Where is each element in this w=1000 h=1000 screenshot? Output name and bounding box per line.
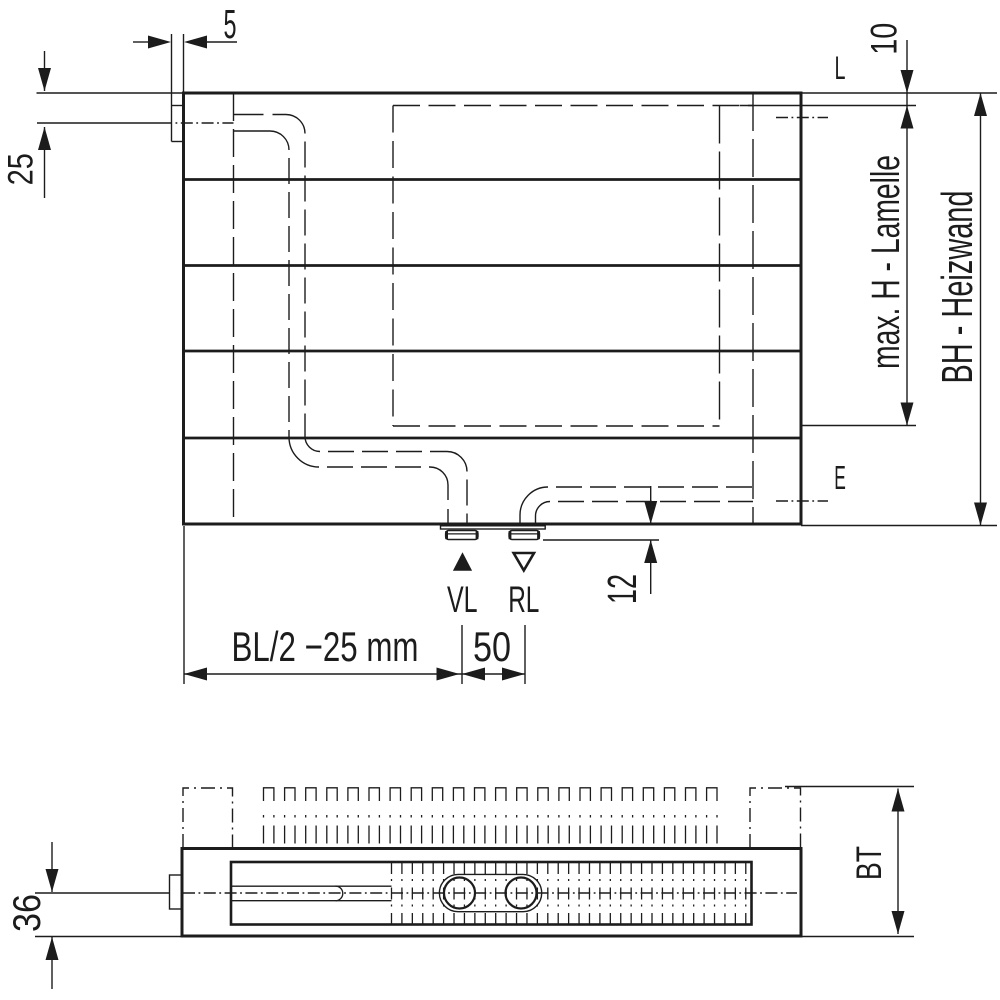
svg-text:max. H - Lamelle: max. H - Lamelle xyxy=(864,155,908,369)
svg-text:36: 36 xyxy=(6,894,49,932)
svg-text:RL: RL xyxy=(508,579,539,620)
svg-text:12: 12 xyxy=(599,574,645,604)
svg-text:VL: VL xyxy=(447,579,478,620)
svg-text:E: E xyxy=(834,459,846,496)
svg-text:L: L xyxy=(835,50,846,86)
svg-text:10: 10 xyxy=(864,23,905,55)
svg-text:BL/2 −25 mm: BL/2 −25 mm xyxy=(232,623,419,670)
svg-text:25: 25 xyxy=(2,153,41,185)
svg-text:50: 50 xyxy=(473,623,511,670)
svg-text:5: 5 xyxy=(224,1,237,47)
svg-text:BT: BT xyxy=(850,846,889,880)
svg-text:BH - Heizwand: BH - Heizwand xyxy=(933,191,982,384)
